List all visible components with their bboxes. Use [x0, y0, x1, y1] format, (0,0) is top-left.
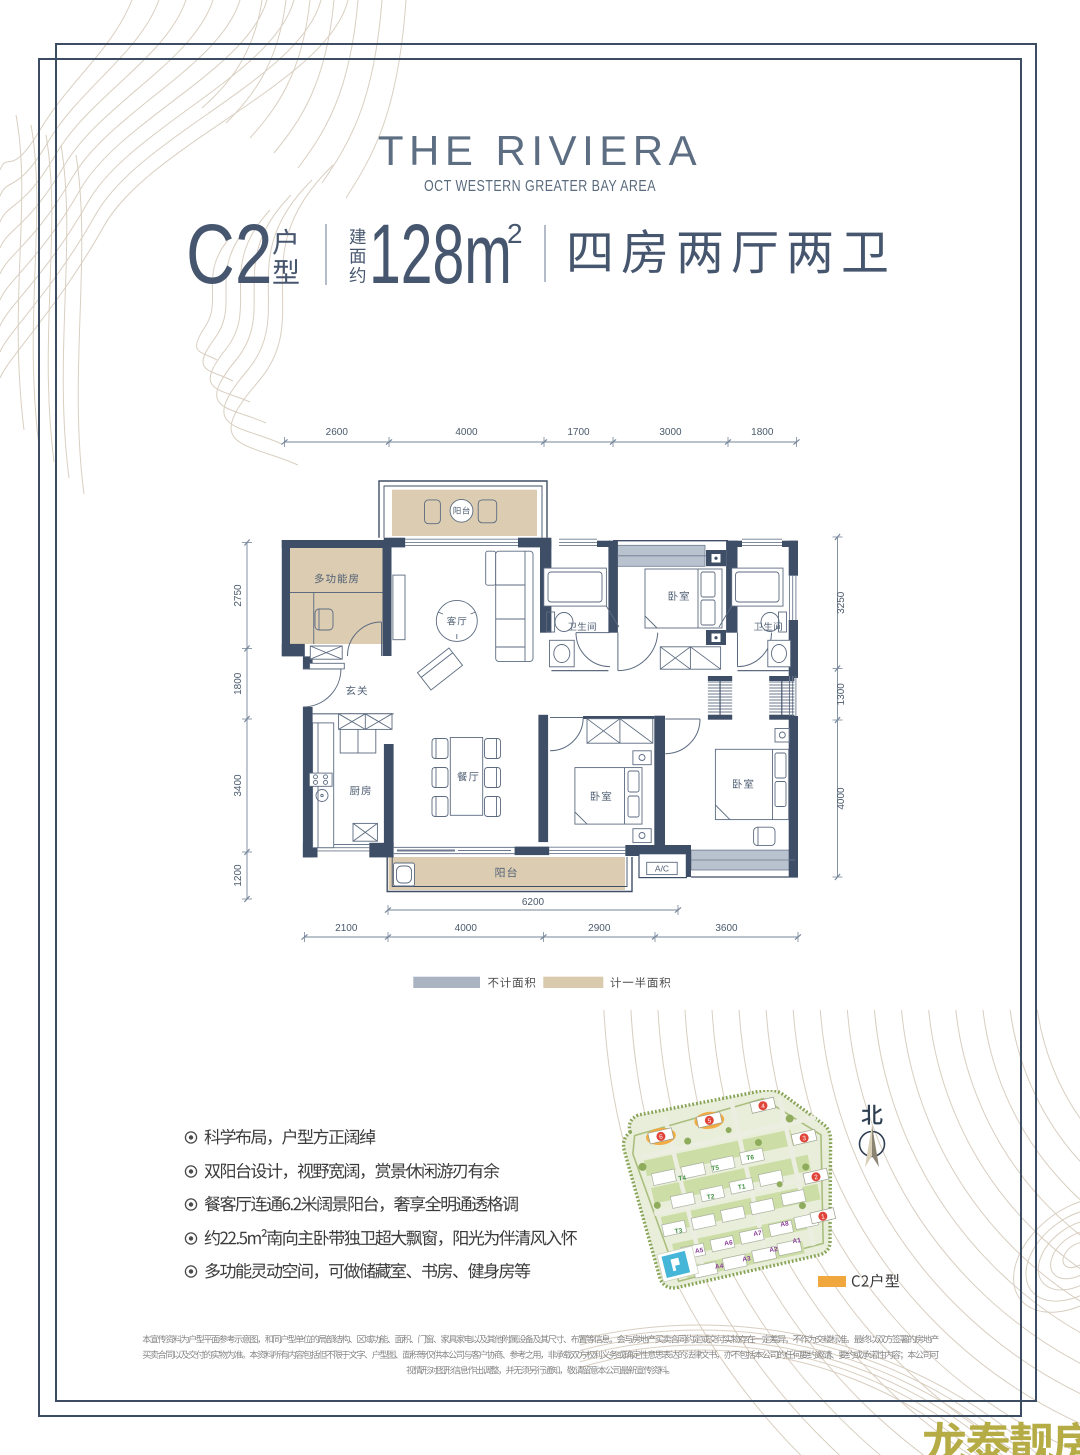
svg-text:1700: 1700 [567, 427, 590, 438]
svg-text:T6: T6 [746, 1154, 755, 1162]
svg-text:1200: 1200 [233, 864, 244, 887]
svg-text:2100: 2100 [335, 923, 358, 934]
svg-text:4000: 4000 [455, 427, 478, 438]
svg-text:A8: A8 [780, 1220, 789, 1228]
svg-text:2750: 2750 [233, 584, 244, 607]
svg-text:1800: 1800 [751, 427, 774, 438]
svg-text:4000: 4000 [836, 787, 847, 810]
svg-text:A2: A2 [769, 1246, 778, 1254]
svg-text:T2: T2 [707, 1193, 716, 1201]
svg-text:T3: T3 [674, 1227, 683, 1235]
svg-text:A6: A6 [724, 1239, 733, 1247]
svg-text:6200: 6200 [522, 897, 545, 908]
svg-text:3400: 3400 [233, 774, 244, 797]
svg-text:A4: A4 [715, 1263, 724, 1271]
svg-text:T1: T1 [738, 1183, 747, 1191]
svg-text:2900: 2900 [588, 923, 611, 934]
svg-text:A/C: A/C [655, 864, 669, 874]
svg-text:A5: A5 [695, 1247, 704, 1255]
svg-text:A3: A3 [742, 1255, 751, 1263]
svg-text:A1: A1 [792, 1237, 801, 1245]
svg-text:1300: 1300 [836, 683, 847, 706]
svg-text:1800: 1800 [233, 672, 244, 695]
svg-text:3600: 3600 [715, 923, 738, 934]
svg-text:3000: 3000 [659, 427, 682, 438]
svg-text:T5: T5 [711, 1165, 720, 1173]
svg-text:T4: T4 [678, 1175, 687, 1183]
svg-text:4000: 4000 [455, 923, 478, 934]
svg-text:2600: 2600 [326, 427, 349, 438]
svg-text:A7: A7 [753, 1230, 762, 1238]
svg-text:3250: 3250 [836, 591, 847, 614]
